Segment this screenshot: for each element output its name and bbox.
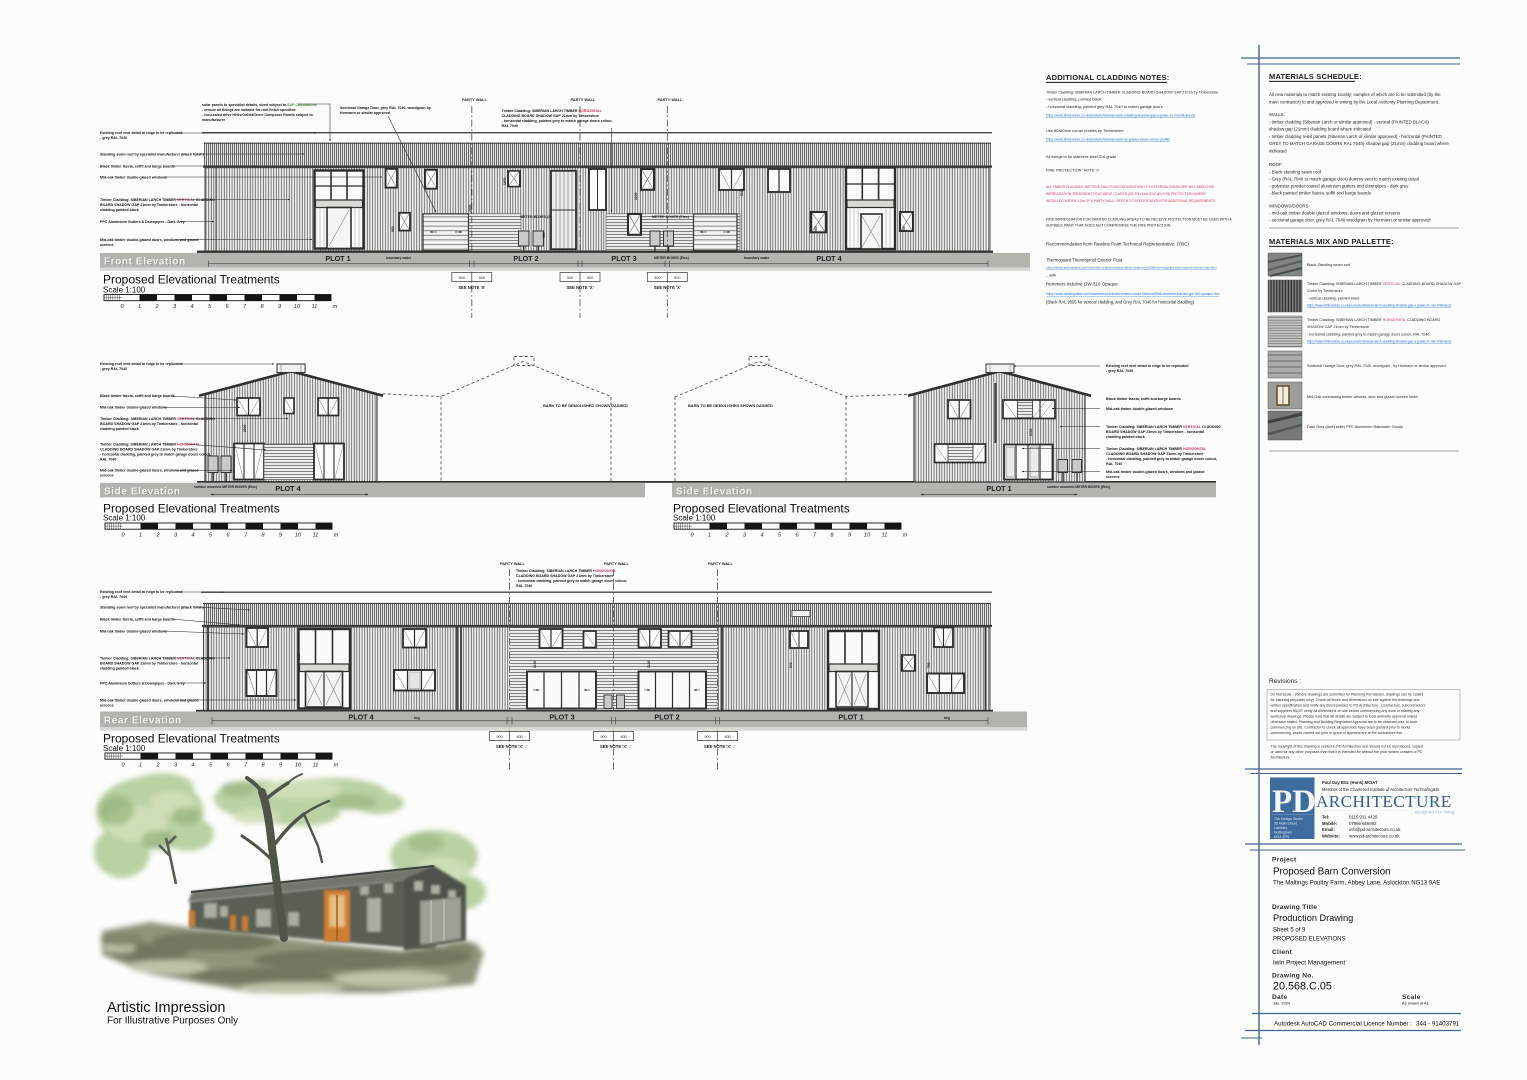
svg-text:Front Elevation: Front Elevation [104, 257, 186, 268]
svg-text:PARTY WALL: PARTY WALL [658, 97, 684, 102]
svg-text:https://www.timberstore.co.uk/: https://www.timberstore.co.uk/products/s… [1307, 304, 1451, 308]
svg-text:ALL TIMBER CLADDING, BATTENS A: ALL TIMBER CLADDING, BATTENS AND PLYWOOD… [1046, 185, 1215, 189]
svg-text:Timber Cladding: SIBERIAN LARC: Timber Cladding: SIBERIAN LARCH TIMBER V… [100, 417, 215, 421]
svg-text:Timber Cladding: SIBERIAN LARC: Timber Cladding: SIBERIAN LARCH TIMBER H… [100, 443, 201, 447]
svg-text:Mid-oak timber double-glazed d: Mid-oak timber double-glazed doors, wind… [100, 238, 198, 242]
svg-text:CLADDING BOARD SHADOW GAP 21mm: CLADDING BOARD SHADOW GAP 21mm by Timber… [516, 574, 614, 578]
svg-text:As shown at A1: As shown at A1 [1402, 1001, 1429, 1006]
svg-text:2100: 2100 [533, 660, 537, 668]
svg-text:900: 900 [479, 276, 485, 280]
svg-text:https://www.rawlinspaints.com/: https://www.rawlinspaints.com/home/wood-… [1046, 292, 1220, 296]
svg-text:900: 900 [654, 276, 660, 280]
svg-text:- horizontal cladding, painted: - horizontal cladding, painted grey to m… [502, 119, 613, 123]
svg-text:(Black RAL 9005 for vertical c: (Black RAL 9005 for vertical cladding, a… [1046, 300, 1194, 305]
svg-text:PLOT 4: PLOT 4 [348, 713, 373, 722]
svg-text:METER BOXES (Elec): METER BOXES (Elec) [654, 256, 689, 260]
svg-text:750: 750 [927, 662, 931, 668]
svg-text:Black timber fascia, soffit an: Black timber fascia, soffit and barge bo… [100, 618, 175, 622]
svg-text:Standing seam roof by speciali: Standing seam roof by specialist manufac… [100, 153, 204, 157]
svg-text:Timber Cladding: SIBERIAN LARC: Timber Cladding: SIBERIAN LARCH TIMBER V… [1307, 282, 1462, 286]
svg-text:21mm by Timberstore: 21mm by Timberstore [1307, 289, 1343, 293]
svg-text:- black painted timber fascia,: - black painted timber fascia, soffit an… [1269, 191, 1372, 196]
svg-text:RAL 7040: RAL 7040 [1106, 462, 1122, 466]
svg-text:- grey RAL 7040: - grey RAL 7040 [100, 595, 127, 599]
svg-text:900: 900 [567, 276, 573, 280]
svg-text:ADDITIONAL CLADDING NOTES:: ADDITIONAL CLADDING NOTES: [1046, 73, 1169, 82]
svg-text:indicated: indicated [1269, 149, 1287, 154]
svg-text:- timber cladding (Siberian La: - timber cladding (Siberian Larch or sim… [1269, 120, 1429, 125]
svg-text:Existing roof vent detail to r: Existing roof vent detail to ridge to be… [100, 362, 182, 366]
svg-text:GREY TO MATCH GARAGE DOORS RAL: GREY TO MATCH GARAGE DOORS RAL 7040) sha… [1269, 141, 1449, 146]
svg-text:For Illustrative Purposes Only: For Illustrative Purposes Only [107, 1016, 238, 1027]
svg-text:Thermoguard Thermoproof Exteri: Thermoguard Thermoproof Exterior Fluid [1046, 258, 1123, 263]
svg-text:Dark Grey (Anthracite) PPC Alu: Dark Grey (Anthracite) PPC Aluminium Rai… [1307, 425, 1403, 429]
svg-text:shadow gap (21mm) cladding boa: shadow gap (21mm) cladding board where i… [1269, 127, 1372, 132]
svg-text:BOARD SHADOW GAP 21mm by Timbe: BOARD SHADOW GAP 21mm by Timberstore - h… [100, 422, 198, 426]
svg-text:Side Elevation: Side Elevation [104, 486, 181, 497]
svg-text:900: 900 [587, 276, 593, 280]
svg-text:for planning purposes only). C: for planning purposes only). Check all l… [1271, 698, 1420, 702]
svg-text:900: 900 [814, 226, 818, 232]
svg-text:Revisions :: Revisions : [1269, 678, 1301, 685]
svg-text:Artistic Impression: Artistic Impression [107, 1000, 225, 1016]
svg-text:- horizontal cladding, painted: - horizontal cladding, painted grey to m… [1307, 333, 1429, 337]
svg-text:CLADDING BOARD SHADOW GAP 21mm: CLADDING BOARD SHADOW GAP 21mm by Timber… [502, 114, 600, 118]
svg-text:MATERIALS MIX AND PALLETTE:: MATERIALS MIX AND PALLETTE: [1269, 237, 1394, 246]
svg-text:900: 900 [391, 226, 395, 232]
svg-text:Scale 1:100: Scale 1:100 [103, 744, 146, 753]
svg-text:k/g: k/g [414, 715, 420, 720]
svg-text:2100: 2100 [740, 188, 744, 196]
svg-text:workshop drawings. Please not: workshop drawings. Please note that all … [1271, 715, 1418, 719]
svg-text:PLOT 1: PLOT 1 [838, 713, 863, 722]
svg-text:NG4 4PN: NG4 4PN [1274, 835, 1289, 839]
svg-text:METER BOXES (Elec): METER BOXES (Elec) [652, 215, 690, 219]
svg-text:https://www.timberstore.co.uk/: https://www.timberstore.co.uk/products/s… [1046, 138, 1170, 142]
svg-text:CLADDING BOARD SHADOW GAP 21mm: CLADDING BOARD SHADOW GAP 21mm by Timber… [100, 448, 198, 452]
svg-text:- horizontal cladding, painted: - horizontal cladding, painted grey to m… [1106, 457, 1217, 461]
svg-text:otherwise stated. Planning an: otherwise stated. Planning and Building … [1271, 720, 1418, 724]
svg-text:surface mounted METER BOXES (E: surface mounted METER BOXES (Elec) [1047, 485, 1110, 489]
svg-text:900: 900 [704, 735, 710, 739]
svg-text:Mid-oak timber double-glazed d: Mid-oak timber double-glazed doors, wind… [100, 699, 198, 703]
svg-text:Mid-Oak contrasting timber win: Mid-Oak contrasting timber window, door … [1307, 395, 1418, 399]
svg-text:Existing roof vent detail to r: Existing roof vent detail to ridge to be… [1106, 364, 1188, 368]
svg-text:20.568.C.05: 20.568.C.05 [1273, 981, 1332, 993]
svg-text:k/g: k/g [944, 715, 950, 720]
svg-text:1870: 1870 [503, 177, 507, 185]
svg-text:- horizontal cladding, painted: - horizontal cladding, painted grey RAL … [1046, 104, 1163, 109]
svg-text:BARN TO BE DEMOLISHED SHOWN DA: BARN TO BE DEMOLISHED SHOWN DASHED [543, 403, 628, 408]
svg-text:PLOT 2: PLOT 2 [513, 254, 538, 263]
svg-text:boundary water: boundary water [744, 256, 770, 260]
svg-text:https://www.timberstore.co.uk/: https://www.timberstore.co.uk/products/s… [1046, 114, 1195, 118]
svg-text:All fixings to be stainless st: All fixings to be stainless steel 316 gr… [1046, 154, 1116, 159]
svg-text:Autodesk AutoCAD Commercial Li: Autodesk AutoCAD Commercial Licence Numb… [1274, 1021, 1412, 1028]
svg-text:https://www.rawlinspaints.com/: https://www.rawlinspaints.com/home/fire-… [1046, 266, 1217, 270]
svg-text:Standing seam roof by speciali: Standing seam roof by specialist manufac… [100, 606, 204, 610]
svg-text:900: 900 [600, 735, 606, 739]
svg-text:SEE NOTE 'X': SEE NOTE 'X' [654, 285, 681, 290]
svg-text:PPC Aluminium Gutters & Downpi: PPC Aluminium Gutters & Downpipes - Dark… [100, 220, 185, 224]
svg-text:Sheet 5 of 9: Sheet 5 of 9 [1273, 928, 1306, 934]
svg-text:- Black standing seam roof: - Black standing seam roof [1269, 170, 1322, 175]
svg-text:344 - 91403791: 344 - 91403791 [1416, 1021, 1460, 1028]
svg-text:Paul Day BSc (Hons) MCIAT: Paul Day BSc (Hons) MCIAT [1322, 780, 1378, 785]
svg-text:FIRE IMPREGNATION FOR PAINTED: FIRE IMPREGNATION FOR PAINTED CLADDING A… [1046, 218, 1233, 222]
svg-text:screens: screens [1106, 475, 1120, 479]
svg-text:Proposed Barn Conversion: Proposed Barn Conversion [1273, 867, 1391, 878]
svg-text:WALLS:: WALLS: [1269, 112, 1285, 117]
svg-text:SEE NOTE 'X': SEE NOTE 'X' [600, 744, 627, 749]
svg-text:Drawing Title: Drawing Title [1272, 904, 1317, 911]
svg-text:2500: 2500 [297, 652, 301, 660]
svg-text:- vertical cladding, painted b: - vertical cladding, painted black [1046, 97, 1101, 102]
svg-text:BOARD SHADOW GAP 21mm by Timbe: BOARD SHADOW GAP 21mm by Timberstore - h… [100, 203, 198, 207]
svg-text:PLOT 3: PLOT 3 [611, 254, 636, 263]
svg-text:Timber Cladding: SIBERIAN LARC: Timber Cladding: SIBERIAN LARCH TIMBER V… [100, 657, 215, 661]
svg-text:Timber Cladding: SIBERIAN LARC: Timber Cladding: SIBERIAN LARCH TIMBER H… [502, 109, 603, 113]
svg-text:surface mounted METER BOXES (E: surface mounted METER BOXES (Elec) [194, 485, 257, 489]
svg-text:Production Drawing: Production Drawing [1273, 913, 1353, 923]
svg-text:- grey RAL 7040: - grey RAL 7040 [100, 367, 127, 371]
svg-text:2100: 2100 [634, 192, 638, 200]
svg-text:- ensure all fixings are suita: - ensure all fixings are suitable for ro… [202, 108, 295, 112]
svg-text:Mid-oak timber double-glazed w: Mid-oak timber double-glazed windows [100, 176, 167, 180]
svg-text:900: 900 [496, 735, 502, 739]
svg-text:- horizontal cladding, painted: - horizontal cladding, painted grey to m… [516, 579, 627, 583]
svg-text:Timber Cladding: SIBERIAN LARC: Timber Cladding: SIBERIAN LARCH TIMBER H… [516, 569, 617, 573]
svg-text:Website:: Website: [1322, 833, 1340, 838]
svg-text:900: 900 [674, 276, 680, 280]
svg-text:IMPREGNATION TREATMENT TO ACHI: IMPREGNATION TREATMENT TO ACHIEVE CLASS … [1046, 192, 1207, 196]
svg-text:Jan. 2024: Jan. 2024 [1273, 1001, 1291, 1006]
svg-text:Timber Cladding: SIBERIAN LARC: Timber Cladding: SIBERIAN LARCH TIMBER V… [100, 198, 215, 202]
svg-text:RAL 7040: RAL 7040 [502, 124, 518, 128]
svg-text:commencing, works carried out: commencing, works carried out prior to g… [1271, 731, 1403, 735]
svg-text:- Grey (RAL 7040 to match gara: - Grey (RAL 7040 to match garage door) d… [1269, 177, 1419, 182]
svg-text:SEE NOTE 'X': SEE NOTE 'X' [496, 744, 523, 749]
svg-text:MATERIALS SCHEDULE:: MATERIALS SCHEDULE: [1269, 72, 1362, 81]
svg-text:Use 80x60mm corner profiles by: Use 80x60mm corner profiles by Timbersto… [1046, 128, 1124, 133]
svg-text:PROPOSED ELEVATIONS: PROPOSED ELEVATIONS [1273, 937, 1345, 943]
svg-text:The copyright of this drawing: The copyright of this drawing is vested … [1271, 745, 1423, 749]
svg-text:Project: Project [1272, 857, 1297, 864]
svg-text:Mid-oak timber double-glazed w: Mid-oak timber double-glazed windows [1106, 407, 1173, 411]
svg-text:Architecture: Architecture [1271, 756, 1290, 760]
svg-text:750: 750 [902, 226, 906, 232]
svg-text:Sectional Garage Door, grey RA: Sectional Garage Door, grey RAL 7040, wo… [340, 106, 431, 110]
svg-text:screens: screens [100, 474, 114, 478]
svg-text:SEE NOTE 'X': SEE NOTE 'X' [704, 744, 731, 749]
svg-text:Timber Cladding: SIBERIAN LARC: Timber Cladding: SIBERIAN LARCH TIMBER H… [1106, 447, 1207, 451]
svg-text:2500: 2500 [243, 424, 247, 432]
svg-text:Mid-oak timber double-glazed d: Mid-oak timber double-glazed doors, wind… [1106, 470, 1204, 474]
svg-text:SEE NOTE 'X': SEE NOTE 'X' [458, 285, 485, 290]
svg-text:PLOT 3: PLOT 3 [549, 713, 574, 722]
svg-text:Sectional Garage Door, grey RA: Sectional Garage Door, grey RAL 7040, wo… [1307, 364, 1446, 368]
svg-text:written specification and noti: written specification and notify any dis… [1271, 704, 1426, 708]
svg-text:BOARD SHADOW GAP 21mm by Timbe: BOARD SHADOW GAP 21mm by Timberstore - h… [1106, 430, 1204, 434]
svg-text:screens: screens [100, 704, 114, 708]
svg-text:PARTY WALL: PARTY WALL [500, 561, 526, 566]
svg-text:PLOT 1: PLOT 1 [986, 484, 1011, 493]
svg-text:900: 900 [724, 735, 730, 739]
svg-text:www.pd-architecture.co.uk: www.pd-architecture.co.uk [1349, 833, 1400, 838]
svg-text:...designed For living: ...designed For living [1411, 810, 1455, 815]
svg-text:900: 900 [789, 662, 793, 668]
svg-text:RAL 7040: RAL 7040 [100, 458, 116, 462]
svg-text:Do Not Scale - (Where drawings: Do Not Scale - (Where drawings are submi… [1271, 693, 1424, 697]
svg-text:SEE NOTE 'X': SEE NOTE 'X' [566, 285, 593, 290]
svg-text:FIRE PROTECTION: NOTE 'X': FIRE PROTECTION: NOTE 'X' [1046, 168, 1100, 173]
svg-text:Black timber fascia, soffit an: Black timber fascia, soffit and barge bo… [100, 165, 175, 169]
svg-text:Rear Elevation: Rear Elevation [104, 716, 182, 727]
svg-text:cladding painted black: cladding painted black [100, 667, 139, 671]
svg-text:PARTY WALL: PARTY WALL [604, 561, 630, 566]
svg-text:SUITABLE PAINT THAT DOES NOT C: SUITABLE PAINT THAT DOES NOT COMPROMISE … [1046, 224, 1171, 228]
svg-text:PLOT 1: PLOT 1 [325, 254, 350, 263]
svg-text:Mid-oak timber double-glazed w: Mid-oak timber double-glazed windows [100, 630, 167, 634]
svg-text:PARTY WALL: PARTY WALL [708, 561, 734, 566]
svg-text:Scale 1:100: Scale 1:100 [103, 286, 146, 295]
svg-text:The Maltings Poultry Farm, Abb: The Maltings Poultry Farm, Abbey Lane, A… [1273, 880, 1440, 887]
svg-text:Black timber fascia, soffit an: Black timber fascia, soffit and barge bo… [100, 394, 175, 398]
svg-text:- vertical cladding, painted b: - vertical cladding, painted black [1307, 297, 1360, 301]
svg-text:commencing on site. Contracto: commencing on site. Contractor to check … [1271, 726, 1411, 730]
svg-text:ARCHITECTURE: ARCHITECTURE [1316, 792, 1452, 811]
svg-text:PARTY WALL: PARTY WALL [571, 97, 597, 102]
svg-text:PPC Aluminium Gutters & Downpi: PPC Aluminium Gutters & Downpipes - Dark… [100, 682, 185, 686]
svg-text:The Design Studio: The Design Studio [1274, 817, 1303, 821]
svg-text:2500: 2500 [1029, 428, 1033, 436]
svg-text:Lambley: Lambley [1274, 826, 1287, 830]
svg-text:Mobile:: Mobile: [1322, 821, 1338, 826]
svg-text:Scale 1:100: Scale 1:100 [673, 514, 716, 523]
svg-text:boundary water: boundary water [386, 256, 412, 260]
svg-text:cladding painted black: cladding painted black [1106, 435, 1145, 439]
svg-text:Nottingham: Nottingham [1274, 831, 1292, 835]
svg-text:2500: 2500 [468, 204, 472, 212]
svg-text:SHADOW GAP 21mm by Timberstore: SHADOW GAP 21mm by Timberstore [1307, 325, 1369, 329]
svg-text:screens: screens [100, 243, 114, 247]
svg-text:...with: ...with [1046, 273, 1056, 278]
svg-text:or used for any other purposes: or used for any other purposes than that… [1271, 750, 1423, 754]
svg-text:CLADDING BOARD SHADOW GAP 21mm: CLADDING BOARD SHADOW GAP 21mm by Timber… [1106, 452, 1204, 456]
svg-text:900: 900 [542, 232, 546, 238]
svg-text:All new materials to match exi: All new materials to match existing loca… [1269, 92, 1441, 97]
svg-text:PLOT 4: PLOT 4 [275, 484, 300, 493]
svg-text:INSTALLED WITHIN 1.0m OF A PAR: INSTALLED WITHIN 1.0m OF A PARTY WALL - … [1046, 199, 1216, 203]
svg-text:manufacturer: manufacturer [202, 118, 226, 122]
svg-text:- horizontal cladding, painted: - horizontal cladding, painted grey to m… [100, 453, 211, 457]
svg-text:Scale 1:100: Scale 1:100 [103, 514, 146, 523]
svg-text:Mid-oak timber double-glazed w: Mid-oak timber double-glazed windows [100, 406, 167, 410]
svg-text:solar panels to specialist det: solar panels to specialist details, size… [202, 103, 317, 107]
svg-text:https://www.timberstore.co.uk/: https://www.timberstore.co.uk/products/s… [1307, 340, 1451, 344]
svg-text:- mid-oak timber double glazed: - mid-oak timber double glazed windows, … [1269, 211, 1401, 216]
svg-text:35 Main Street: 35 Main Street [1274, 822, 1297, 826]
svg-text:cladding painted black: cladding painted black [100, 208, 139, 212]
svg-text:Black Standing seam roof: Black Standing seam roof [1307, 263, 1351, 267]
svg-text:Existing roof vent detail to r: Existing roof vent detail to ridge to be… [100, 131, 182, 135]
svg-text:- polyester powder coated alum: - polyester powder coated aluminium gutt… [1269, 184, 1409, 189]
svg-text:- grey RAL 7040: - grey RAL 7040 [100, 136, 127, 140]
svg-text:900: 900 [620, 735, 626, 739]
svg-text:Remmers Induline GW-310 Opaque: Remmers Induline GW-310 Opaque [1046, 282, 1118, 287]
svg-text:Client: Client [1272, 949, 1293, 956]
svg-text:ROOF:: ROOF: [1269, 162, 1283, 167]
svg-text:Iwin Project Management: Iwin Project Management [1273, 960, 1345, 967]
svg-text:- sectional garage door, grey: - sectional garage door, grey RAL 7040 w… [1269, 218, 1431, 223]
svg-text:- timber cladding releif panel: - timber cladding releif panels (Siberia… [1269, 134, 1442, 139]
svg-text:BARN TO BE DEMOLISHED SHOWN DA: BARN TO BE DEMOLISHED SHOWN DASHED [688, 403, 773, 408]
svg-text:Proposed Elevational Treatment: Proposed Elevational Treatments [103, 273, 280, 287]
svg-text:Side Elevation: Side Elevation [676, 486, 753, 497]
svg-text:and suppliers MUST verify all: and suppliers MUST verify all dimensions… [1271, 709, 1420, 713]
svg-text:Recommendation from Rawlins Pa: Recommendation from Rawlins Paint Techni… [1046, 242, 1189, 247]
svg-text:RAL 7040: RAL 7040 [516, 584, 532, 588]
svg-text:900: 900 [459, 276, 465, 280]
svg-text:Black timber fascia, soffit an: Black timber fascia, soffit and barge bo… [1106, 397, 1181, 401]
svg-text:900: 900 [516, 735, 522, 739]
svg-text:main contractor) to and approv: main contractor) to and approved in writ… [1269, 100, 1439, 105]
svg-text:Existing roof vent detail to r: Existing roof vent detail to ridge to be… [100, 590, 182, 594]
svg-text:Tel:: Tel: [1322, 815, 1330, 820]
svg-text:2100: 2100 [647, 660, 651, 668]
svg-text:cladding painted black: cladding painted black [100, 427, 139, 431]
svg-text:BOARD SHADOW GAP 21mm by Timbe: BOARD SHADOW GAP 21mm by Timberstore - h… [100, 662, 198, 666]
svg-text:- grey RAL 7040: - grey RAL 7040 [1106, 369, 1133, 373]
svg-text:PARTY WALL: PARTY WALL [462, 97, 488, 102]
svg-text:0115 931 4420: 0115 931 4420 [1349, 815, 1378, 820]
svg-text:PLOT 4: PLOT 4 [816, 254, 841, 263]
svg-text:Email:: Email: [1322, 827, 1335, 832]
svg-text:07966 666962: 07966 666962 [1349, 821, 1377, 826]
svg-text:Timber Cladding: SIBERIAN LARC: Timber Cladding: SIBERIAN LARCH TIMBER H… [1307, 318, 1441, 322]
svg-text:Drawing No.: Drawing No. [1272, 973, 1314, 980]
svg-text:Timber Cladding: SIBERIAN LARC: Timber Cladding: SIBERIAN LARCH TIMBER C… [1046, 91, 1218, 95]
svg-text:PLOT 2: PLOT 2 [654, 713, 679, 722]
svg-text:info@pd-architecture.co.uk: info@pd-architecture.co.uk [1349, 827, 1401, 832]
svg-text:WINDOWS/DOORS:: WINDOWS/DOORS: [1269, 204, 1310, 209]
svg-text:Timber Cladding: SIBERIAN LARC: Timber Cladding: SIBERIAN LARCH TIMBER V… [1106, 425, 1221, 429]
svg-text:Hormann or similar approved: Hormann or similar approved [340, 111, 390, 115]
svg-text:- concealed drive HiVis/OnNetG: - concealed drive HiVis/OnNetGrene Compo… [202, 113, 314, 117]
